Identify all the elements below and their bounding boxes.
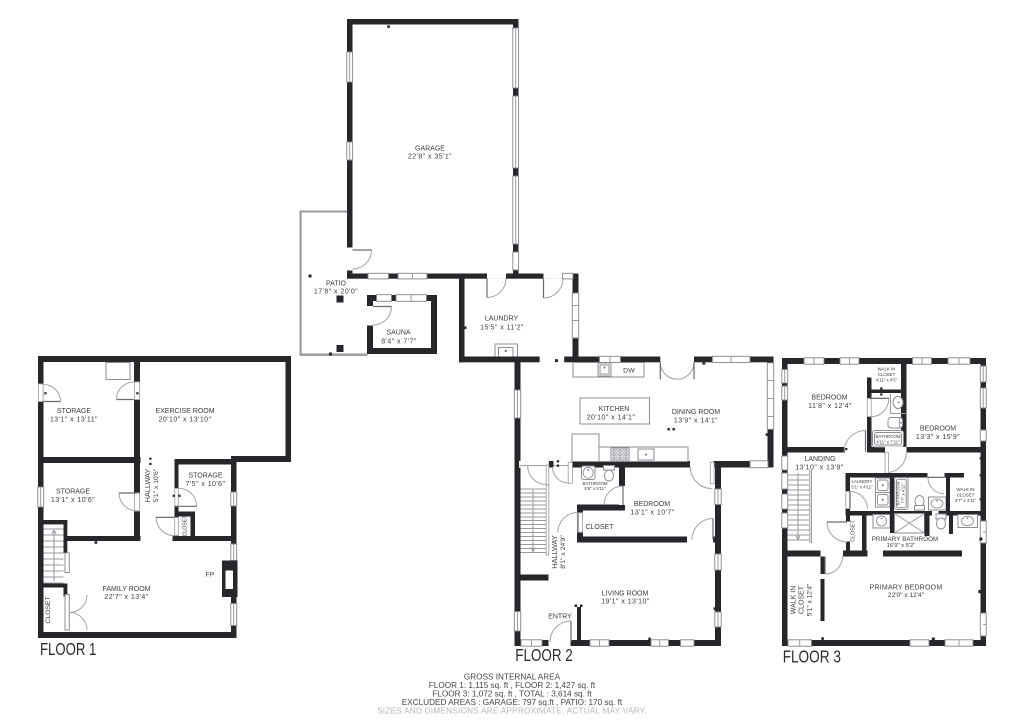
- svg-text:17'8" x 20'0": 17'8" x 20'0": [314, 289, 358, 296]
- svg-text:13'1" x 10'7": 13'1" x 10'7": [630, 510, 674, 517]
- svg-text:LIVING ROOM: LIVING ROOM: [602, 591, 649, 598]
- svg-text:13'1" x 10'6": 13'1" x 10'6": [51, 497, 95, 504]
- svg-text:WALK IN: WALK IN: [957, 487, 975, 492]
- svg-text:20'10" x 14'1": 20'10" x 14'1": [587, 415, 636, 422]
- svg-text:BEDROOM: BEDROOM: [811, 395, 847, 402]
- svg-text:WALK IN: WALK IN: [878, 367, 896, 372]
- svg-text:PATIO: PATIO: [326, 281, 347, 288]
- svg-text:CLOSET: CLOSET: [851, 520, 857, 542]
- svg-text:13'1" x 13'11": 13'1" x 13'11": [50, 417, 98, 424]
- svg-text:13'9" x 14'1": 13'9" x 14'1": [674, 418, 718, 425]
- svg-text:19'1" x 13'10": 19'1" x 13'10": [601, 599, 650, 606]
- svg-text:22'7" x 13'4": 22'7" x 13'4": [104, 594, 148, 601]
- svg-text:HALLWAY: HALLWAY: [143, 469, 152, 503]
- svg-text:CLOSET: CLOSET: [183, 515, 189, 537]
- svg-text:FLOOR 3: FLOOR 3: [783, 647, 841, 667]
- svg-text:GARAGE: GARAGE: [415, 146, 445, 153]
- svg-text:PRIMARY BEDROOM: PRIMARY BEDROOM: [870, 585, 943, 592]
- svg-text:KITCHEN: KITCHEN: [599, 406, 630, 413]
- svg-text:5'8" x 5'11": 5'8" x 5'11": [584, 486, 606, 491]
- svg-text:11'8" x 12'4": 11'8" x 12'4": [808, 403, 852, 410]
- svg-text:STORAGE: STORAGE: [57, 408, 91, 415]
- svg-text:HALLWAY: HALLWAY: [550, 535, 559, 569]
- svg-text:STORAGE: STORAGE: [188, 473, 222, 480]
- svg-text:7'5" x 10'6": 7'5" x 10'6": [186, 481, 226, 488]
- svg-text:4'7" x 4'11": 4'7" x 4'11": [955, 498, 977, 503]
- svg-text:FLOOR 1: FLOOR 1: [40, 639, 96, 659]
- svg-text:BATHROOM: BATHROOM: [582, 481, 607, 486]
- svg-text:STORAGE: STORAGE: [56, 489, 90, 496]
- svg-text:DW: DW: [623, 368, 635, 375]
- svg-text:LAUNDRY: LAUNDRY: [852, 479, 873, 484]
- svg-text:22'0" x 12'4": 22'0" x 12'4": [888, 592, 925, 599]
- svg-text:13'3" x 15'9": 13'3" x 15'9": [916, 434, 960, 441]
- svg-text:5'1" x 4'11": 5'1" x 4'11": [851, 485, 873, 490]
- svg-text:CLOSET: CLOSET: [878, 372, 896, 377]
- svg-text:CLOSET: CLOSET: [45, 596, 52, 623]
- svg-text:22'8" x 35'1": 22'8" x 35'1": [408, 154, 452, 161]
- svg-text:4'11" x 7'11": 4'11" x 7'11": [876, 440, 900, 445]
- svg-text:8'1" x 24'9": 8'1" x 24'9": [560, 535, 567, 569]
- svg-text:5'1" x 12'4": 5'1" x 12'4": [807, 583, 814, 616]
- svg-text:BEDROOM: BEDROOM: [920, 426, 956, 433]
- svg-text:SIZES AND DIMENSIONS ARE APPRO: SIZES AND DIMENSIONS ARE APPROXIMATE, AC…: [377, 707, 647, 716]
- svg-text:WALK IN: WALK IN: [791, 586, 798, 615]
- svg-text:16'9" x 5'2": 16'9" x 5'2": [887, 543, 916, 549]
- svg-text:FAMILY ROOM: FAMILY ROOM: [103, 586, 151, 593]
- svg-text:5'1" x 10'6": 5'1" x 10'6": [153, 468, 160, 502]
- svg-text:DINING ROOM: DINING ROOM: [672, 409, 720, 416]
- svg-text:BATHROOM: BATHROOM: [875, 434, 900, 439]
- svg-text:LAUNDRY: LAUNDRY: [485, 316, 519, 323]
- svg-text:CLOSET: CLOSET: [799, 585, 806, 614]
- svg-text:LANDING: LANDING: [804, 456, 835, 463]
- svg-text:8'4" x 7'7": 8'4" x 7'7": [381, 339, 417, 346]
- svg-text:FP: FP: [205, 572, 214, 579]
- svg-text:4'11" x 4'5": 4'11" x 4'5": [876, 378, 898, 383]
- svg-text:EXERCISE ROOM: EXERCISE ROOM: [155, 408, 214, 415]
- svg-text:13'10" x 13'9": 13'10" x 13'9": [795, 465, 844, 472]
- svg-text:BEDROOM: BEDROOM: [634, 501, 670, 508]
- svg-text:20'10" x 13'10": 20'10" x 13'10": [159, 417, 212, 424]
- svg-text:CLOSET: CLOSET: [957, 493, 975, 498]
- svg-text:SAUNA: SAUNA: [386, 330, 410, 337]
- svg-text:7'7" x 4'11": 7'7" x 4'11": [901, 483, 906, 504]
- svg-text:CLOSET: CLOSET: [585, 524, 614, 531]
- svg-text:FLOOR 2: FLOOR 2: [515, 645, 572, 665]
- svg-text:15'5" x 11'2": 15'5" x 11'2": [480, 325, 524, 332]
- svg-text:ENTRY: ENTRY: [548, 614, 572, 621]
